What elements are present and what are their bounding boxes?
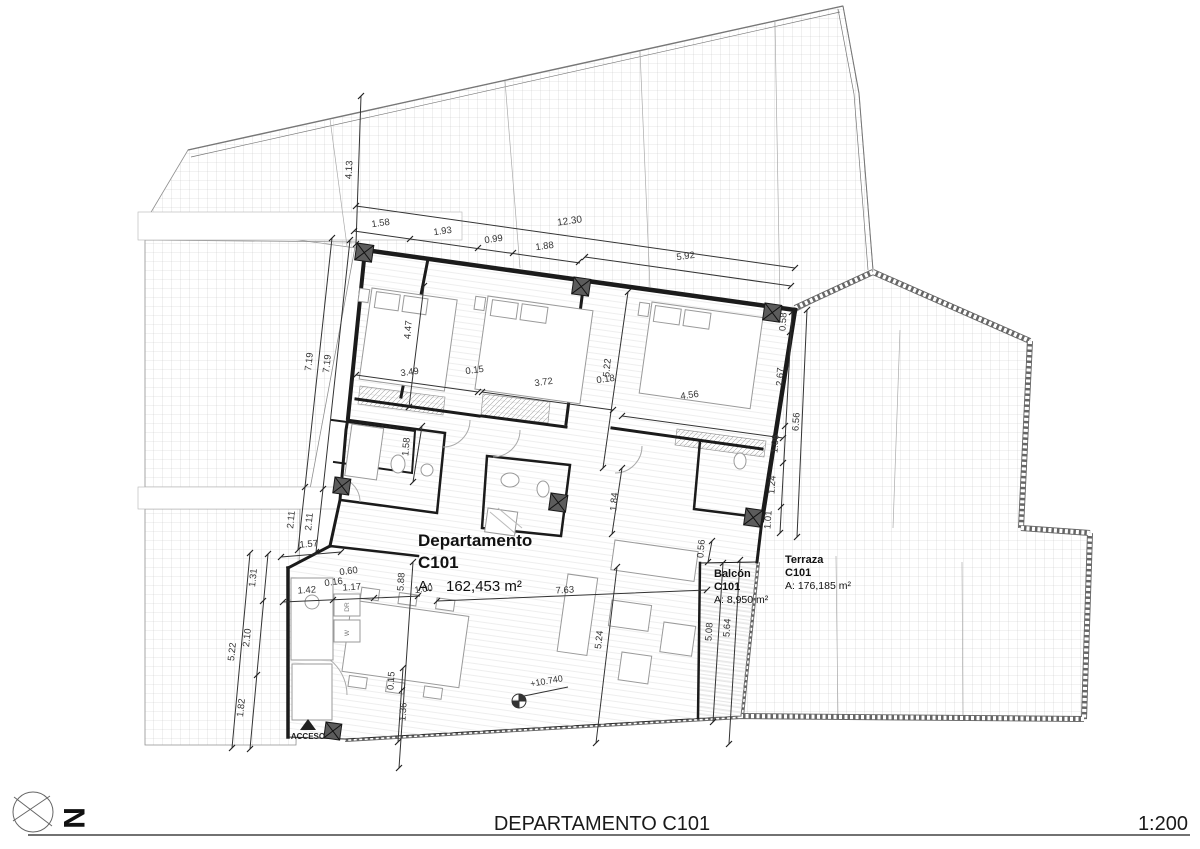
bathtub — [345, 424, 384, 480]
dim-label: 6.56 — [790, 412, 802, 431]
dim-label: 2.11 — [303, 512, 316, 531]
toilet-3 — [734, 453, 746, 469]
acceso-label: ACCESO — [291, 732, 325, 741]
dim-label: 7.19 — [303, 352, 316, 372]
terraza-area: A: 176,185 m² — [785, 580, 851, 592]
dim-label: 1.58 — [400, 437, 413, 456]
site-path-band-upper — [138, 212, 462, 240]
dim-label: 1.24 — [766, 475, 778, 494]
kitchen-counter — [291, 578, 333, 720]
title-block: DEPARTAMENTO C101 1:200 N — [13, 792, 1190, 835]
dim-label: 0.56 — [695, 539, 708, 558]
dim-label: 1.36 — [397, 702, 409, 721]
terraza-code: C101 — [785, 567, 811, 579]
balcon-title: Balcón — [714, 568, 751, 580]
sheet-title: DEPARTAMENTO C101 — [494, 813, 710, 835]
dim-label: 7.19 — [321, 354, 334, 374]
dim-label: 1.82 — [235, 698, 248, 718]
dim-label: 1.06 — [769, 434, 781, 453]
dim-label: 2.11 — [285, 510, 298, 529]
dim-label: 5.22 — [226, 642, 239, 662]
dim-label: 1.17 — [342, 581, 361, 593]
washer-label: W — [344, 629, 351, 636]
dim-label: 1.84 — [608, 492, 621, 511]
dim-label: 5.22 — [601, 358, 614, 377]
compass-needle — [13, 796, 52, 826]
site-bottom-left-block — [145, 509, 300, 745]
dim-label: 4.47 — [402, 320, 415, 339]
dim-label: 4.13 — [344, 160, 356, 179]
dim-label: 5.64 — [721, 618, 733, 637]
dim-label: 7.63 — [555, 585, 574, 597]
dim-label: 1.31 — [247, 568, 260, 588]
apartment — [288, 243, 795, 740]
bed-2 — [463, 294, 593, 404]
departamento-title: Departamento — [418, 531, 532, 550]
dim-label: 5.08 — [703, 622, 715, 641]
dim-label: 1.01 — [762, 510, 774, 529]
sink-2 — [501, 473, 519, 487]
floor-plan-sheet: 12.30 5.92 1.58 1.93 0.99 1.88 4.13 7.19… — [0, 0, 1200, 849]
terraza-title: Terraza — [785, 554, 824, 566]
sink-1 — [421, 464, 433, 476]
dim-label: 5.88 — [395, 572, 407, 591]
departamento-area-label: A: — [418, 578, 432, 595]
north-label: N — [57, 807, 90, 829]
toilet-1 — [391, 455, 405, 473]
dim-label: 1.57 — [299, 538, 318, 551]
north-compass: N — [13, 792, 90, 832]
departamento-code: C101 — [418, 553, 459, 572]
dryer-label: DR — [344, 602, 351, 612]
dim-label: 1.42 — [297, 584, 316, 596]
departamento-area-value: 162,453 m² — [446, 578, 522, 595]
toilet-2 — [537, 481, 549, 497]
floor-plan-drawing: 12.30 5.92 1.58 1.93 0.99 1.88 4.13 7.19… — [0, 0, 1200, 849]
dim-label: 0.58 — [777, 312, 789, 331]
dim-label: 2.10 — [241, 628, 254, 648]
dim-label: 0.15 — [385, 671, 397, 690]
sheet-scale: 1:200 — [1138, 813, 1188, 835]
balcon-area: A: 8,950 m² — [714, 594, 769, 606]
balcon-code: C101 — [714, 581, 740, 593]
dim-label: 5.24 — [593, 630, 606, 650]
dim-label: 2.67 — [774, 367, 786, 386]
